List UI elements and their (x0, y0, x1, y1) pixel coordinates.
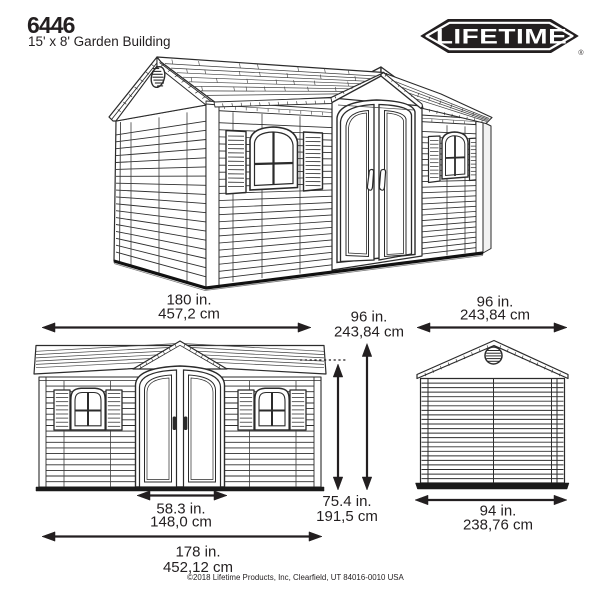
svg-text:243,84 cm: 243,84 cm (334, 324, 404, 341)
svg-text:LIFETIME: LIFETIME (436, 25, 567, 49)
svg-text:191,5 cm: 191,5 cm (316, 508, 378, 525)
svg-text:®: ® (578, 49, 584, 57)
svg-text:243,84 cm: 243,84 cm (460, 307, 530, 324)
svg-text:238,76 cm: 238,76 cm (463, 517, 533, 534)
svg-text:178 in.: 178 in. (175, 544, 220, 561)
svg-text:148,0 cm: 148,0 cm (150, 514, 212, 531)
svg-text:457,2 cm: 457,2 cm (158, 306, 220, 323)
